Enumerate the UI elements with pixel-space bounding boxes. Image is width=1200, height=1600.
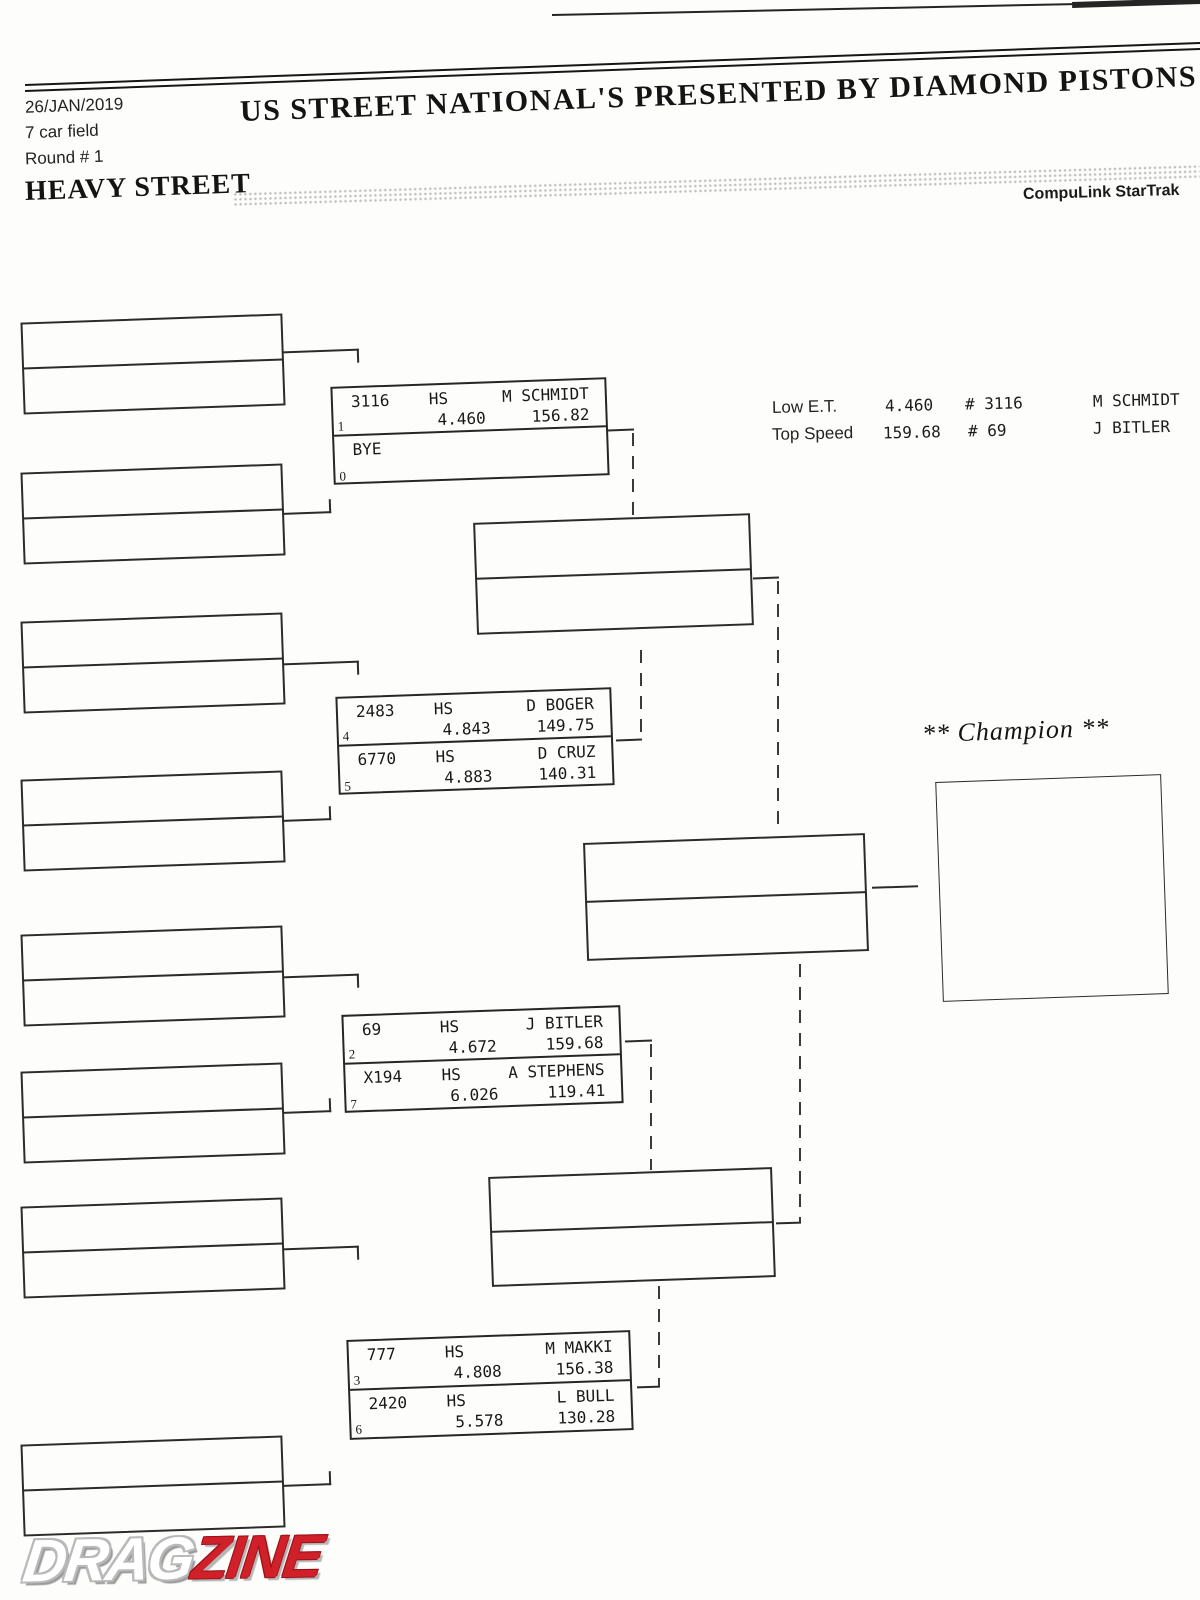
bracket-slot-box [20,1435,285,1536]
lane-number: 7 [350,1096,357,1112]
scanned-bracket-sheet: 26/JAN/2019 7 car field Round # 1 US STR… [0,0,1200,1600]
scan-edge-line [552,3,1092,16]
driver-name: J BITLER [525,1012,603,1034]
low-et-label: Low E.T. [772,397,838,418]
car-number: 69 [362,1020,382,1040]
lane-number: 6 [355,1422,362,1438]
car-number: 777 [367,1344,397,1364]
lane-number: 2 [348,1046,355,1062]
top-speed-row: Top Speed 159.68 # 69 J BITLER [772,415,1192,447]
final-box [583,833,869,961]
connector-stub [283,1471,331,1487]
car-number: 6770 [357,749,396,769]
connector-line [608,429,634,432]
class-title: HEAVY STREET [24,168,251,208]
connector-dashed [799,964,801,1222]
slot-divider [23,1107,283,1118]
speed-value: 159.68 [545,1033,603,1054]
low-et-driver: M SCHMIDT [1093,390,1180,411]
slot-divider [23,508,283,519]
speed-value: 119.41 [547,1081,605,1102]
lane-number: 3 [353,1373,360,1389]
class-code: HS [434,699,454,719]
bracket-slot-box [20,463,285,564]
et-value: 5.578 [455,1411,504,1432]
connector-line-final-champion [872,885,918,889]
slot-divider [586,891,866,903]
field-size-label: 7 car field [25,121,99,144]
class-code: HS [429,389,449,409]
match-entry: 2420 HS L BULL 5.578 130.28 6 [350,1381,631,1438]
slot-divider [23,358,283,369]
lane-number: 0 [339,468,346,484]
top-speed-car: # 69 [968,421,1007,441]
speed-value: 140.31 [538,763,596,784]
bracket-slot-box [20,770,285,871]
connector-stub [283,974,359,991]
semifinal-box-2 [488,1167,776,1287]
connector-line [616,739,642,742]
bracket-slot-box [20,313,285,414]
class-code: HS [441,1065,461,1085]
slot-divider [23,815,283,826]
connector-line [776,1222,801,1225]
date-label: 26/JAN/2019 [25,94,124,117]
low-et-value: 4.460 [885,395,934,415]
bracket-slot-box [20,612,285,713]
car-number: X194 [363,1067,402,1087]
lane-number: 5 [344,778,351,794]
connector-dashed [650,1044,652,1170]
et-value: 4.883 [444,766,493,787]
connector-stub [283,1098,331,1114]
driver-name: D CRUZ [537,742,595,763]
class-code: HS [440,1017,460,1037]
et-value: 4.843 [442,718,491,739]
top-speed-label: Top Speed [772,423,854,445]
connector-stub [283,499,331,515]
class-code: HS [446,1391,466,1411]
top-speed-driver: J BITLER [1093,417,1170,438]
top-speed-value: 159.68 [883,422,941,442]
speed-value: 156.38 [555,1358,613,1379]
class-code: HS [444,1342,464,1362]
timing-system-label: CompuLink StarTrak [1023,182,1180,204]
car-number: 2483 [356,701,395,721]
et-value: 4.460 [437,408,486,429]
round-label: Round # 1 [25,147,104,170]
connector-stub [283,349,359,366]
lane-number: 1 [337,418,344,434]
et-value: 6.026 [450,1084,499,1105]
connector-stub [283,806,331,822]
slot-divider [23,657,283,668]
et-value: 4.808 [453,1362,502,1383]
slot-divider [23,1242,283,1253]
driver-name: D BOGER [526,694,594,715]
logo-zine-text: ZINE [189,1522,326,1591]
connector-dashed [777,581,779,833]
bracket-slot-box [20,925,285,1026]
connector-dashed [640,650,642,738]
slot-divider [476,568,751,580]
slot-divider [491,1221,773,1233]
champion-box [935,774,1169,1002]
champion-label: ** Champion ** [922,713,1110,750]
connector-stub [283,1246,359,1263]
match-entry: BYE 0 [334,427,608,484]
low-et-car: # 3116 [965,393,1023,413]
connector-line [637,1386,660,1389]
match-box-3: 69 HS J BITLER 4.672 159.68 2 X194 HS A … [341,1005,623,1113]
driver-name: M SCHMIDT [502,384,589,406]
lane-number: 4 [342,728,349,744]
driver-name: A STEPHENS [508,1060,605,1082]
semifinal-box-1 [473,513,754,635]
driver-name: M MAKKI [545,1337,613,1358]
match-entry: 6770 HS D CRUZ 4.883 140.31 5 [339,737,613,794]
speed-value: 130.28 [557,1407,615,1428]
car-number: 2420 [368,1393,407,1413]
driver-name: L BULL [556,1386,614,1407]
match-box-1: 3116 HS M SCHMIDT 4.460 156.82 1 BYE 0 [330,377,609,485]
match-entry: X194 HS A STEPHENS 6.026 119.41 7 [345,1055,622,1113]
scan-edge-bar [1072,0,1200,8]
connector-line [625,1040,652,1043]
speed-value: 156.82 [531,405,589,426]
car-number: BYE [352,439,382,459]
bracket-slot-box [20,1197,285,1298]
logo-drag-text: DRAG [20,1525,197,1595]
class-code: HS [435,747,455,767]
et-value: 4.672 [448,1037,497,1058]
match-box-4: 777 HS M MAKKI 4.808 156.38 3 2420 HS L … [346,1330,633,1440]
low-et-row: Low E.T. 4.460 # 3116 M SCHMIDT [772,388,1192,420]
connector-line [753,577,779,580]
connector-stub [283,661,359,678]
dragzine-logo: DRAGZINE [19,1521,326,1595]
slot-divider [23,970,283,981]
connector-dashed [632,433,634,515]
slot-divider [23,1480,283,1491]
car-number: 3116 [351,391,390,411]
match-box-2: 2483 HS D BOGER 4.843 149.75 4 6770 HS D… [335,687,614,795]
connector-dashed [658,1286,660,1386]
bracket-slot-box [20,1062,285,1163]
speed-value: 149.75 [536,715,594,736]
